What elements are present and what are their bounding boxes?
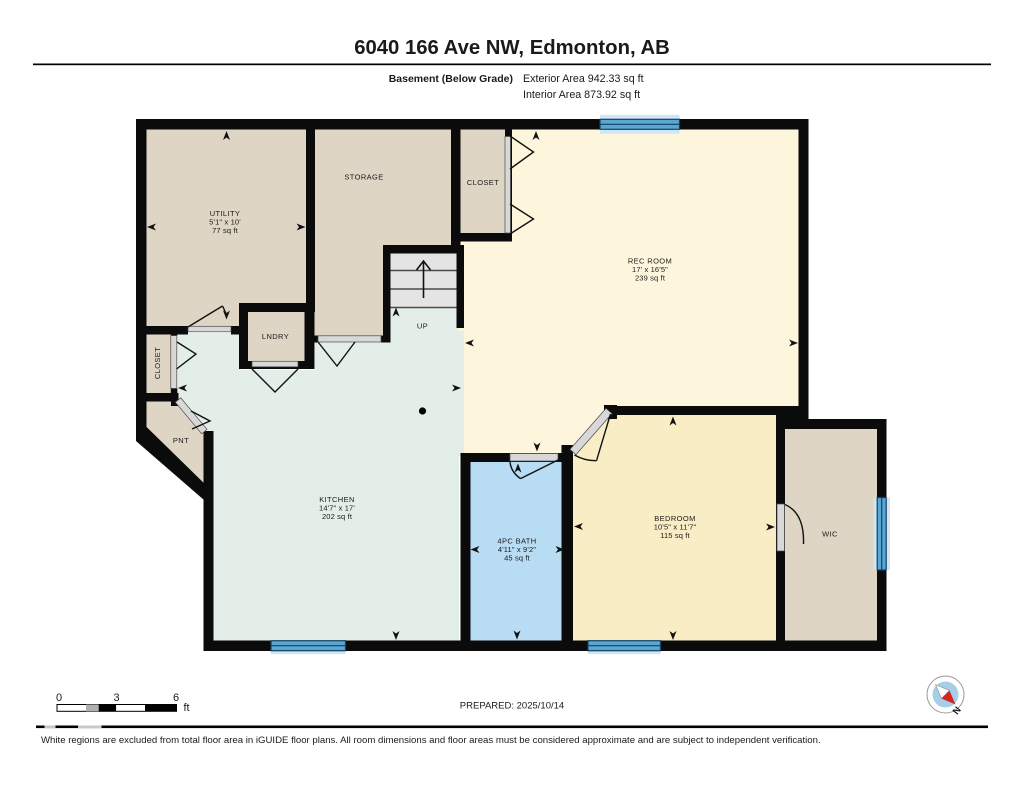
svg-text:6: 6 [173,692,179,704]
svg-text:Exterior Area 942.33 sq ft: Exterior Area 942.33 sq ft [523,73,644,85]
svg-text:STORAGE: STORAGE [344,173,383,182]
svg-text:0: 0 [56,692,62,704]
svg-text:115 sq ft: 115 sq ft [660,531,690,540]
svg-text:239 sq ft: 239 sq ft [635,274,666,283]
svg-text:White regions are excluded fro: White regions are excluded from total fl… [41,735,821,746]
svg-text:202 sq ft: 202 sq ft [322,512,353,521]
svg-text:CLOSET: CLOSET [153,347,162,379]
svg-text:Interior Area 873.92 sq ft: Interior Area 873.92 sq ft [523,89,640,101]
svg-text:ft: ft [184,702,190,714]
svg-text:PREPARED: 2025/10/14: PREPARED: 2025/10/14 [460,701,564,712]
svg-text:Basement (Below Grade): Basement (Below Grade) [389,73,513,85]
svg-text:77 sq ft: 77 sq ft [212,226,239,235]
svg-text:45 sq ft: 45 sq ft [504,554,531,563]
svg-text:6040 166 Ave NW, Edmonton, AB: 6040 166 Ave NW, Edmonton, AB [354,37,670,59]
svg-text:UP: UP [417,322,428,331]
svg-text:WIC: WIC [822,530,838,539]
svg-text:LNDRY: LNDRY [262,332,289,341]
svg-text:3: 3 [113,692,119,704]
svg-text:PNT: PNT [173,436,189,445]
svg-text:CLOSET: CLOSET [467,178,499,187]
